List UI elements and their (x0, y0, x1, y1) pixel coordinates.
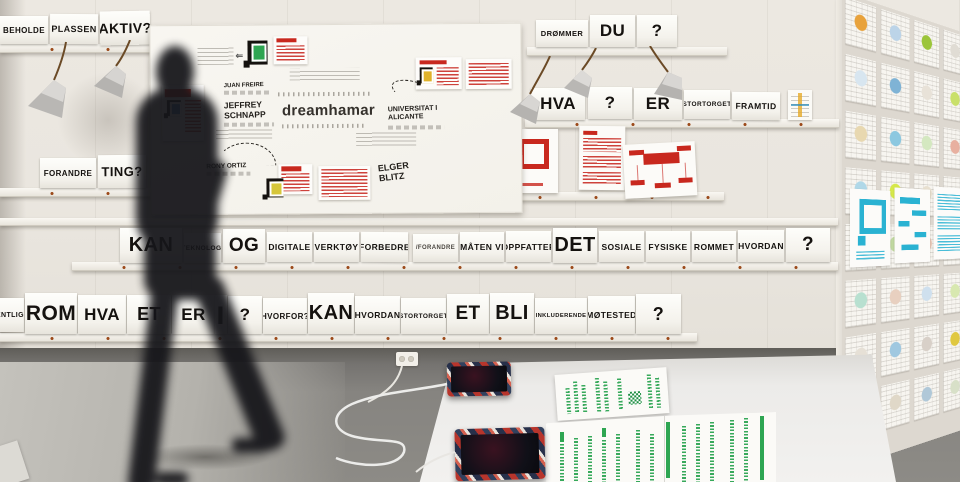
word-card: MÅTEN VI (460, 232, 504, 262)
mini-poster (845, 111, 876, 161)
pencil-note (356, 131, 416, 145)
tablet-screen[interactable] (460, 433, 539, 475)
word-card: SOSIALE (599, 231, 644, 262)
wall-lamp (560, 48, 608, 104)
logo-ticks (278, 92, 370, 97)
red-mini-card (416, 57, 462, 89)
mini-poster (914, 274, 939, 318)
word-card: FORANDRE (40, 158, 96, 188)
sketch-card (788, 90, 812, 120)
word-card: ? (637, 15, 677, 47)
blue-text-poster (934, 187, 960, 260)
wall-lamp (636, 46, 692, 108)
pixel-logo-icon (266, 178, 283, 197)
card-rail (525, 119, 839, 128)
mini-poster (943, 272, 960, 314)
tablet-device[interactable] (447, 361, 512, 396)
word-card: MØTESTED (588, 296, 635, 334)
wall-lamp (14, 40, 84, 120)
network-name: ELGER BLITZ (377, 160, 413, 184)
word-card: FORBEDRE (361, 232, 408, 262)
word-card: HVA (78, 295, 126, 334)
blue-square-poster (850, 188, 890, 267)
mini-poster (881, 63, 909, 113)
red-text-card (318, 166, 370, 200)
word-card: OPPFATTER (506, 231, 551, 262)
tablet-screen[interactable] (451, 366, 507, 393)
red-square-icon (519, 139, 549, 169)
word-card: VERKTØY (314, 232, 359, 262)
network-name: UNIVERSITAT I ALICANTE (388, 104, 450, 122)
mini-poster (845, 0, 876, 52)
red-diagram-poster (623, 141, 698, 199)
person-shoe (156, 472, 188, 482)
mini-poster (914, 71, 939, 118)
word-card: /FORANDRE (413, 234, 458, 262)
word-card: ENTLIG (0, 298, 24, 332)
blurred-person (128, 40, 268, 482)
dreamhamar-logo: dreamhamar (282, 102, 375, 120)
tablet-device[interactable] (454, 427, 545, 481)
mini-poster (914, 373, 939, 421)
person-shoe (232, 438, 268, 453)
word-card: HVORFOR? (263, 298, 307, 334)
blue-square-icon (859, 199, 886, 234)
word-card: DET (553, 228, 597, 263)
card-rail (0, 333, 697, 342)
word-card: BLI (490, 293, 534, 334)
word-card: DU (590, 15, 635, 47)
mini-poster (914, 20, 939, 69)
wall-lamp (506, 56, 558, 128)
word-card: ? (636, 294, 681, 334)
exhibition-room-photo: ⇐ dreamhamar JUAN FREIRE JEFFREY SCHNAPP… (0, 0, 960, 482)
word-card: STORTORGET (401, 298, 446, 334)
mini-poster (914, 323, 939, 369)
pencil-note (290, 68, 360, 80)
mini-poster (943, 367, 960, 413)
mini-poster (881, 380, 909, 431)
mini-poster (881, 328, 909, 377)
word-card: DIGITALE (267, 232, 312, 262)
word-card: FRAMTID (732, 92, 780, 121)
mini-poster (881, 117, 909, 164)
mini-poster (845, 279, 876, 328)
word-card: FYSISKE (646, 231, 690, 262)
word-card: INKLUDERENDE (535, 298, 587, 334)
power-outlet (396, 352, 418, 366)
green-poster-large (546, 412, 776, 482)
mini-poster (881, 276, 909, 322)
word-card: HVORDAN (355, 296, 400, 334)
mini-poster (881, 9, 909, 61)
logo-ticks (282, 124, 366, 129)
mini-poster (943, 29, 960, 75)
green-poster-small (555, 367, 670, 421)
word-card: HVORDAN (738, 230, 784, 262)
blue-chips-poster (894, 187, 930, 263)
card-rail (527, 47, 727, 56)
red-mini-card (273, 36, 307, 64)
mini-poster (845, 54, 876, 106)
word-card: ROM (25, 293, 77, 334)
word-card: ROMMET (692, 231, 736, 262)
qr-code (628, 391, 642, 405)
word-card: DRØMMER (536, 20, 588, 47)
mini-poster (914, 122, 939, 167)
word-card: ET (447, 294, 489, 334)
red-text-poster (579, 126, 626, 190)
word-card: ? (786, 228, 830, 262)
mini-poster (943, 319, 960, 363)
mini-poster (943, 127, 960, 170)
wall-rail (0, 218, 838, 226)
person-back-leg (127, 284, 179, 482)
mini-poster (943, 78, 960, 123)
word-card: KAN (308, 293, 354, 334)
red-text-card (466, 59, 512, 89)
